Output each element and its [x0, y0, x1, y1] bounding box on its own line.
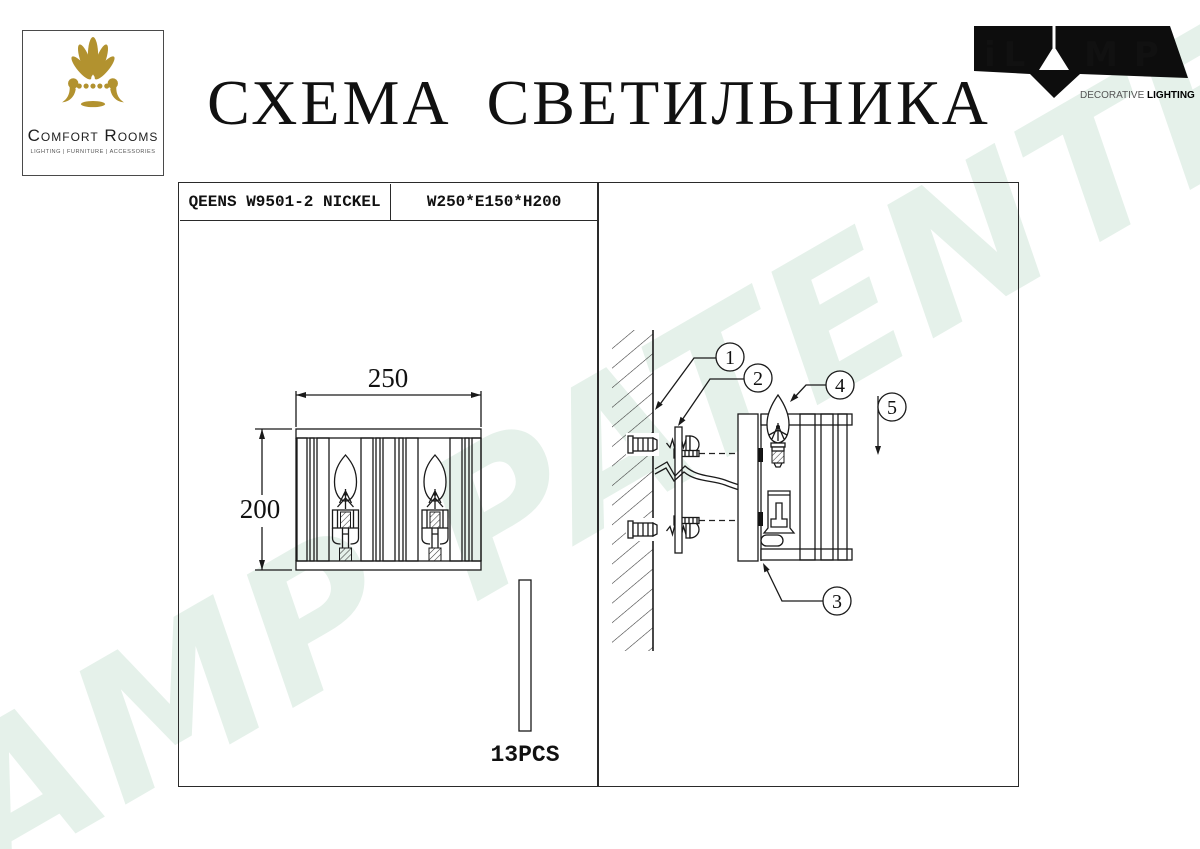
- spec-model-cell: QEENS W9501-2 NICKEL: [180, 184, 391, 221]
- svg-text:3: 3: [832, 591, 842, 613]
- ilamp-logo: iL MP DECORATIVE LIGHTING: [968, 20, 1196, 108]
- spec-header: QEENS W9501-2 NICKEL W250*E150*H200: [180, 184, 598, 221]
- terminal-bracket: [764, 491, 794, 533]
- page-title: СХЕМА СВЕТИЛЬНИКА: [178, 66, 1020, 140]
- svg-text:2: 2: [753, 368, 763, 390]
- installation-drawing: 1 2 4 5 3: [599, 183, 1019, 787]
- supply-wire: [655, 462, 749, 493]
- dimension-width: 250: [296, 363, 481, 427]
- comfort-rooms-name: Comfort Rooms: [23, 126, 163, 146]
- svg-text:4: 4: [835, 375, 845, 397]
- front-view-drawing: 250 200: [179, 221, 598, 787]
- lamp-front-view: [296, 429, 481, 570]
- rod-sample: 13PCS: [490, 580, 559, 768]
- candle-bulb-side: [767, 395, 789, 467]
- ilamp-tagline-lighting: LIGHTING: [1147, 90, 1195, 101]
- comfort-rooms-tagline: LIGHTING | FURNITURE | ACCESSORIES: [23, 149, 163, 155]
- ilamp-letters-mp: MP: [1084, 35, 1175, 75]
- spec-size-cell: W250*E150*H200: [391, 184, 598, 221]
- mounting-plate: [675, 427, 682, 553]
- candle-bulb: [333, 455, 359, 561]
- lamp-side-view: [738, 395, 852, 561]
- shade-stripes: [297, 438, 481, 561]
- ilamp-letters-il: iL: [984, 35, 1033, 75]
- svg-text:5: 5: [887, 397, 897, 419]
- schematic-page: iLAMP PATENTED Comfort Rooms LIGHTING | …: [0, 0, 1200, 849]
- dimension-height: 200: [240, 429, 292, 570]
- pieces-count: 13PCS: [490, 742, 559, 768]
- comfort-rooms-logo: Comfort Rooms LIGHTING | FURNITURE | ACC…: [22, 30, 164, 176]
- callout-5: 5: [875, 393, 906, 455]
- width-value: 250: [368, 363, 409, 393]
- height-value: 200: [240, 494, 281, 524]
- svg-text:1: 1: [725, 347, 735, 369]
- callout-3: 3: [763, 563, 851, 615]
- callout-4: 4: [790, 371, 854, 402]
- crown-icon: [33, 37, 153, 123]
- wire-channel: [761, 535, 783, 546]
- candle-bulb: [422, 455, 448, 561]
- ilamp-tagline-decorative: DECORATIVE: [1080, 90, 1147, 101]
- callout-1: 1: [655, 343, 744, 410]
- svg-text:DECORATIVE LIGHTING: DECORATIVE LIGHTING: [1080, 90, 1195, 101]
- wall-section: [612, 330, 653, 651]
